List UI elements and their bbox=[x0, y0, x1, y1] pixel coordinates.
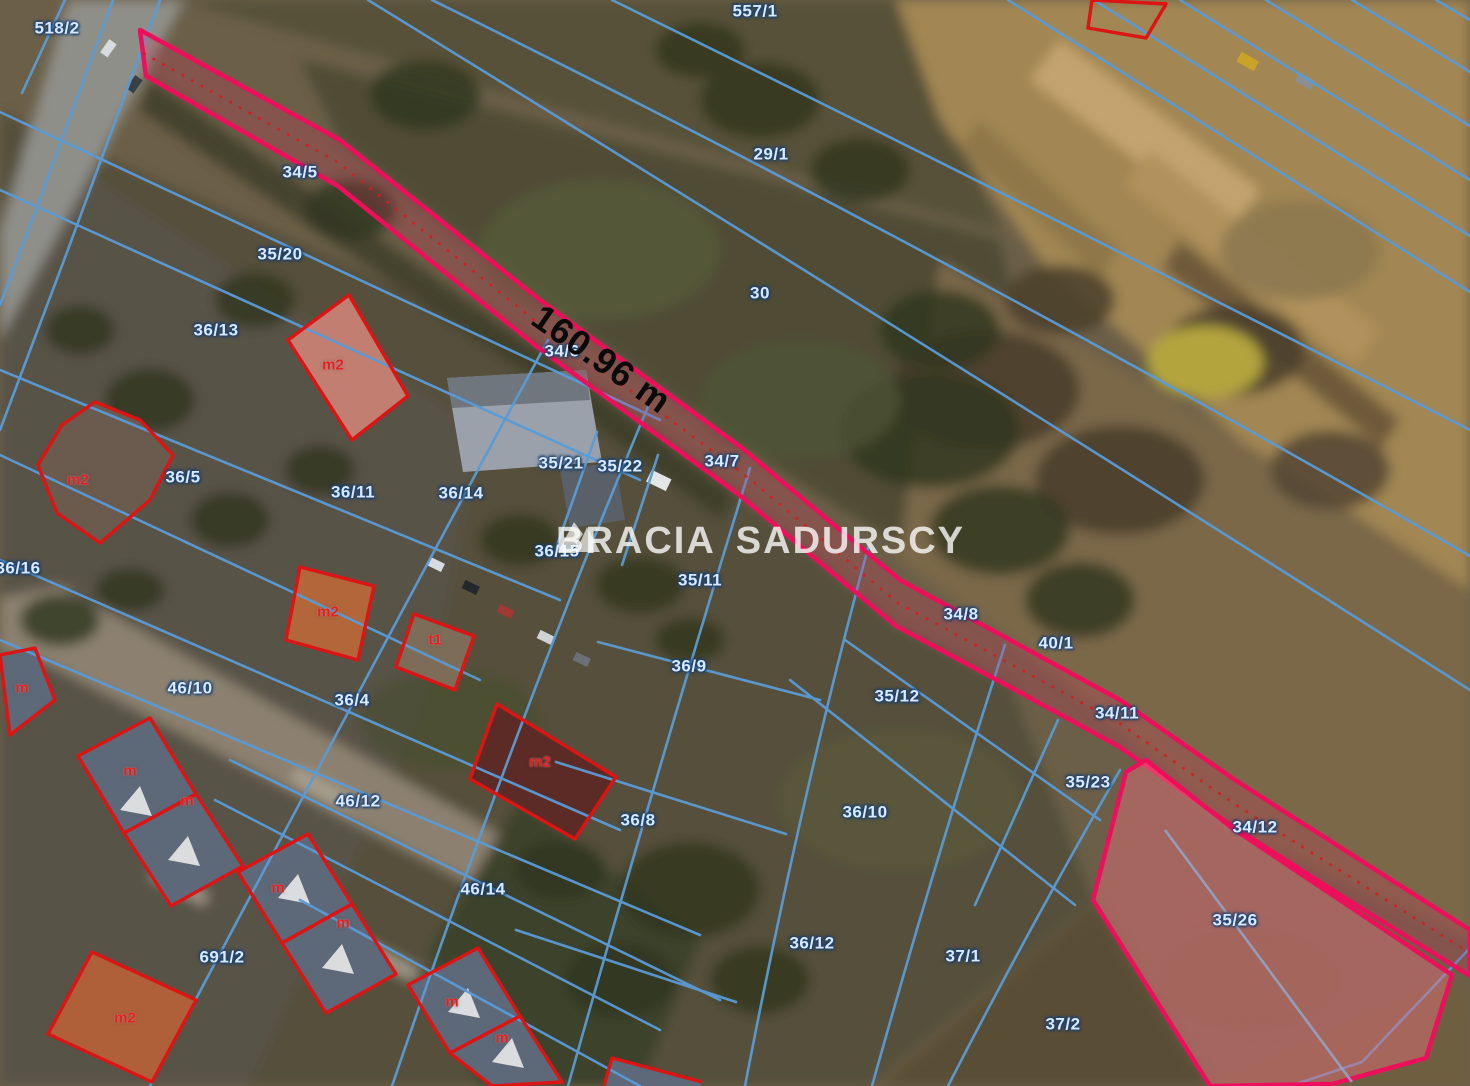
building-code-label: t1 bbox=[428, 633, 441, 648]
parcel-number-label: 30 bbox=[750, 285, 770, 302]
parcel-number-label: 35/22 bbox=[597, 458, 642, 475]
parcel-number-label: 36/9 bbox=[671, 658, 706, 675]
building-code-label: m bbox=[445, 995, 458, 1010]
building-code-label: m bbox=[271, 881, 284, 896]
parcel-number-label: 37/2 bbox=[1045, 1016, 1080, 1033]
parcel-number-label: 34/8 bbox=[943, 606, 978, 623]
parcel-number-label: 46/14 bbox=[460, 881, 505, 898]
parcel-number-label: 36/10 bbox=[842, 804, 887, 821]
building-code-label: m bbox=[336, 916, 349, 931]
parcel-number-label: 36/16 bbox=[0, 560, 41, 577]
parcel-number-label: 557/1 bbox=[732, 3, 777, 20]
parcel-number-label: 518/2 bbox=[34, 20, 79, 37]
building-code-label: m bbox=[15, 681, 28, 696]
parcel-number-label: 36/8 bbox=[620, 812, 655, 829]
parcel-number-label: 36/11 bbox=[331, 484, 375, 501]
parcel-number-label: 691/2 bbox=[199, 949, 244, 966]
parcel-number-label: 36/5 bbox=[165, 469, 200, 486]
parcel-number-label: 40/1 bbox=[1038, 635, 1073, 652]
parcel-number-label: 34/7 bbox=[704, 453, 739, 470]
parcel-number-label: 37/1 bbox=[945, 948, 980, 965]
building-code-label: m bbox=[123, 764, 136, 779]
parcel-number-label: 35/23 bbox=[1065, 774, 1110, 791]
parcel-number-label: 34/5 bbox=[282, 164, 317, 181]
parcel-number-label: 46/10 bbox=[167, 680, 212, 697]
building-code-label: m bbox=[495, 1031, 508, 1046]
building-code-label: m2 bbox=[322, 358, 344, 373]
building-code-label: m2 bbox=[114, 1011, 136, 1026]
parcel-number-label: 34/11 bbox=[1095, 705, 1139, 722]
parcel-number-label: 35/11 bbox=[678, 572, 722, 589]
building-code-label: m2 bbox=[529, 755, 551, 770]
parcel-number-label: 35/20 bbox=[257, 246, 302, 263]
parcel-number-label: 46/12 bbox=[335, 793, 380, 810]
building-code-label: m2 bbox=[67, 473, 89, 488]
watermark: BRACIA SADURSCY bbox=[556, 520, 965, 563]
parcel-number-label: 36/4 bbox=[334, 692, 369, 709]
building-code-label: m2 bbox=[317, 605, 339, 620]
parcel-number-label: 29/1 bbox=[753, 146, 788, 163]
building-code-label: m bbox=[180, 794, 193, 809]
parcel-number-label: 36/12 bbox=[789, 935, 834, 952]
parcel-number-label: 35/26 bbox=[1212, 912, 1257, 929]
parcel-number-label: 35/21 bbox=[538, 455, 583, 472]
aerial-cadastral-map: 518/2557/129/13034/535/2036/1334/635/213… bbox=[0, 0, 1470, 1086]
parcel-number-label: 34/12 bbox=[1232, 819, 1277, 836]
parcel-number-label: 36/14 bbox=[438, 485, 483, 502]
parcel-number-label: 36/13 bbox=[193, 322, 238, 339]
parcel-number-label: 35/12 bbox=[874, 688, 919, 705]
watermark-text-2: SADURSCY bbox=[736, 520, 965, 563]
